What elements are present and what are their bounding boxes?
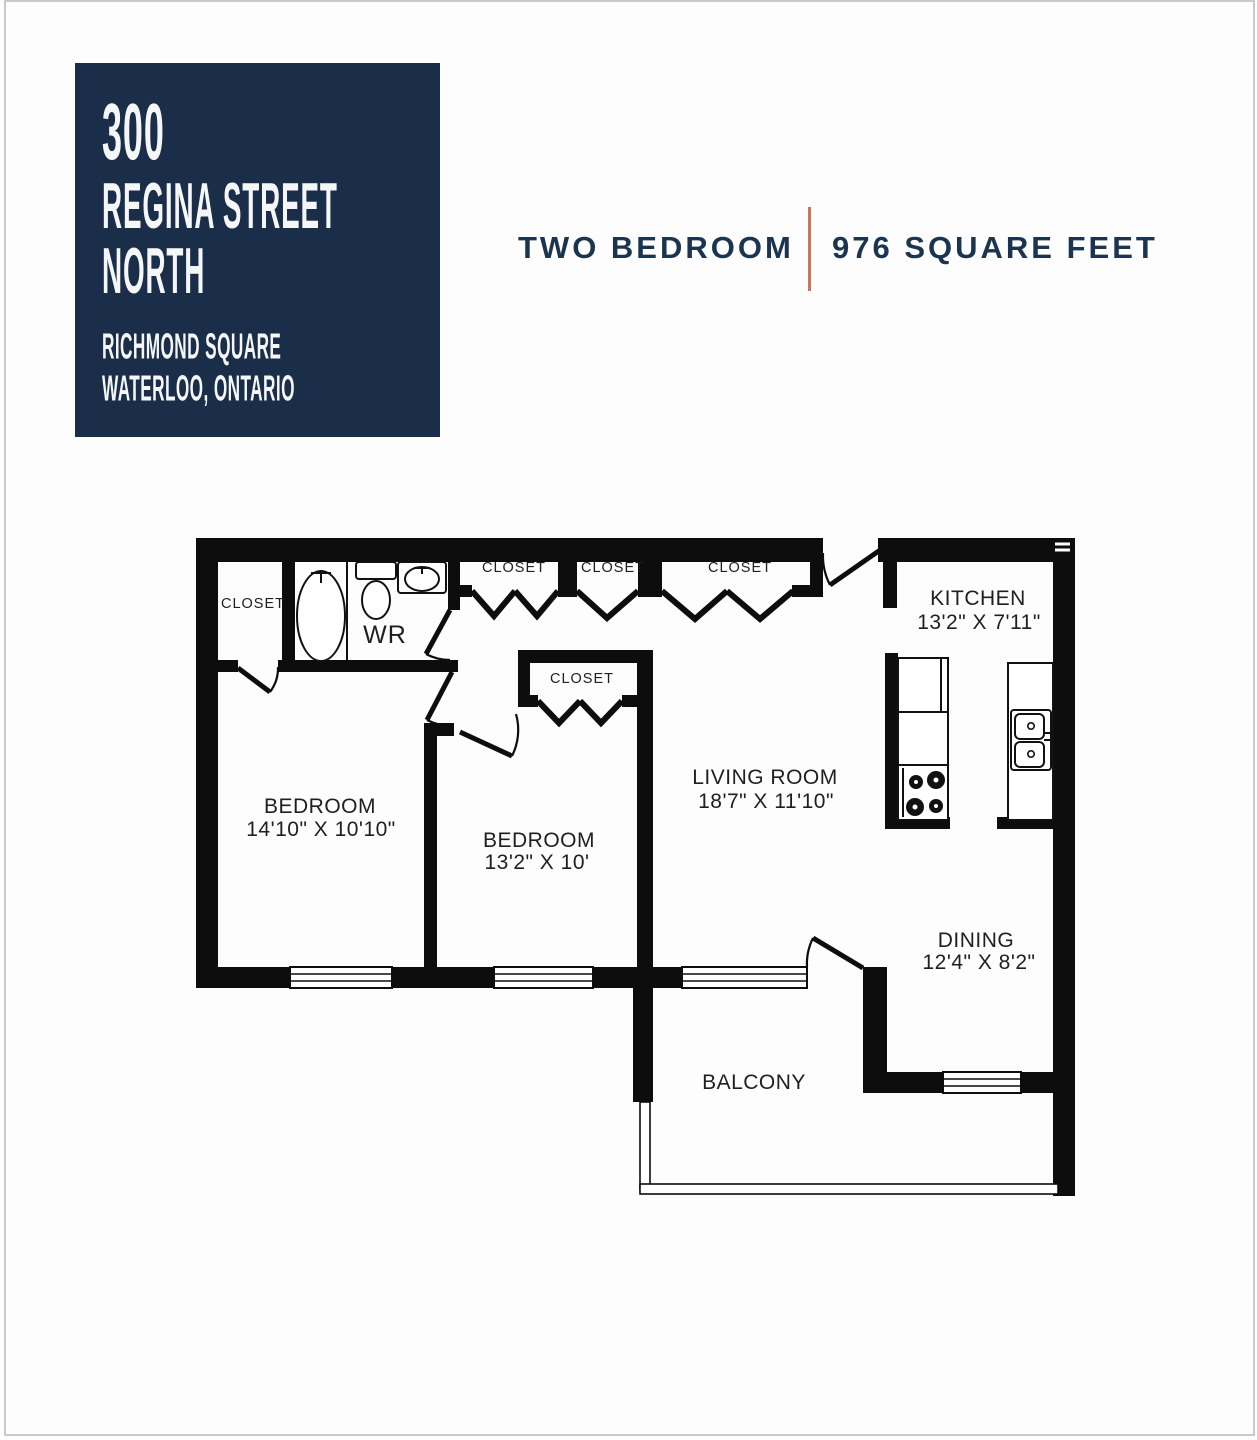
closet1-door — [238, 667, 278, 692]
wr-door — [426, 610, 450, 660]
floorplan-page: 300 REGINA STREET NORTH RICHMOND SQUARE … — [0, 0, 1257, 1440]
living-room-name: LIVING ROOM — [692, 766, 838, 789]
balcony-sliding-window — [682, 967, 807, 988]
bedroom1-dims: 14'10" X 10'10" — [246, 818, 396, 841]
balcony-name: BALCONY — [702, 1071, 806, 1094]
closet-label: CLOSET — [550, 671, 614, 687]
closet-label: CLOSET — [482, 560, 546, 576]
bathroom-sink — [398, 562, 446, 593]
kitchen-counter-left — [898, 712, 948, 765]
bedroom2-window — [494, 967, 593, 988]
bedroom2-dims: 13'2" X 10' — [484, 851, 589, 874]
bedroom2-door — [460, 714, 518, 756]
stove — [898, 765, 948, 820]
bedroom1-window — [290, 967, 392, 988]
dining-name: DINING — [938, 929, 1015, 952]
closet-label: CLOSET — [708, 560, 772, 576]
dining-dims: 12'4" X 8'2" — [923, 951, 1036, 974]
wr-label: WR — [363, 621, 407, 649]
bedroom1-name: BEDROOM — [264, 795, 376, 818]
floorplan-drawing: CLOSET WR CLOSET CLOSET CLOSET CLOSET KI… — [0, 0, 1257, 1440]
balcony-door — [807, 938, 863, 968]
closet-label: CLOSET — [581, 560, 645, 576]
kitchen-name: KITCHEN — [930, 587, 1026, 610]
kitchen-sink — [1011, 710, 1052, 770]
bedroom2-name: BEDROOM — [483, 829, 595, 852]
bedroom1-door — [427, 672, 452, 726]
bathtub — [297, 562, 347, 661]
living-room-dims: 18'7" X 11'10" — [698, 790, 834, 813]
kitchen-dims: 13'2" X 7'11" — [917, 611, 1041, 634]
entry-door — [823, 548, 883, 585]
fridge — [898, 658, 948, 712]
closet-label: CLOSET — [221, 596, 285, 612]
toilet — [356, 562, 396, 619]
dining-window — [943, 1072, 1021, 1093]
balcony-railing — [640, 1102, 1058, 1194]
